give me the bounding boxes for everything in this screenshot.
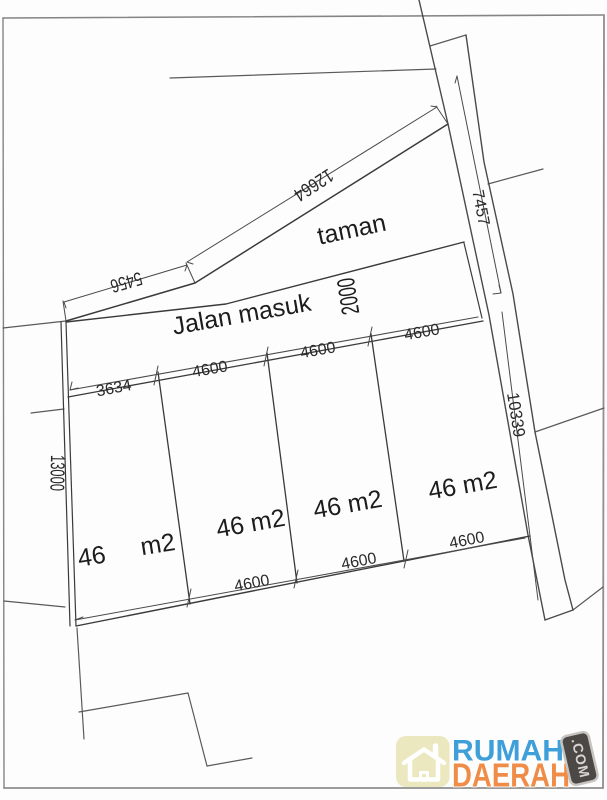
svg-text:2000: 2000 bbox=[332, 276, 365, 317]
svg-text:DAERAH: DAERAH bbox=[452, 757, 570, 794]
svg-text:13000: 13000 bbox=[45, 455, 68, 491]
svg-text:m2: m2 bbox=[138, 528, 177, 561]
svg-text:46: 46 bbox=[76, 541, 108, 573]
